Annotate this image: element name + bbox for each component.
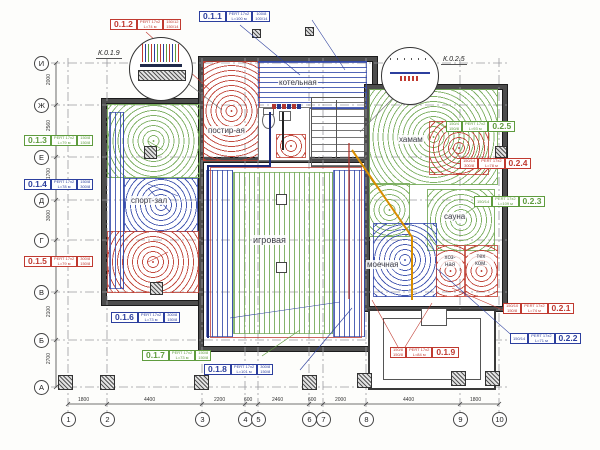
coil-0-2-1	[436, 245, 465, 297]
value-1: 150/14	[513, 337, 525, 341]
value-2: 150/8	[198, 356, 208, 360]
circuit-label-016: 0.1.6 PERT 17x2L=73 м 300/8150/8	[111, 312, 180, 323]
dim-b-a: 2700	[46, 353, 52, 364]
loop-length: L=101 м	[234, 370, 254, 374]
loop-length: L=73 м	[172, 356, 192, 360]
room-label-hoz: хоз- ная	[438, 255, 462, 268]
loop-length: L=79 м	[54, 141, 74, 145]
value-2: 150/8	[167, 318, 177, 322]
column-marker	[276, 194, 287, 205]
footing	[144, 146, 157, 159]
circuit-id: 0.1.8	[204, 364, 231, 375]
hatch-marker	[252, 29, 261, 38]
circuit-label-012: 0.1.2 PERT 17x2L=74 м 150/12150/14	[110, 19, 181, 30]
dim-9-10: 1800	[470, 397, 481, 403]
loop-length: L=74 м	[140, 25, 160, 29]
circuit-label-014: 0.1.4 PERT 17x2L=78 м 150/8300/8	[24, 179, 93, 190]
value-2: 150/8	[80, 141, 90, 145]
circuit-values: 150/14	[510, 333, 528, 344]
circuit-pipe-spec: PERT 17x2L=74 м	[521, 303, 547, 314]
room-label-gym: спорт-зал	[130, 196, 168, 205]
grid-row-zh: Ж	[34, 98, 49, 113]
dim-2-3: 4400	[144, 397, 155, 403]
circuit-values: 300/8150/8	[164, 312, 180, 323]
floor-heating-plan: { "colors": {"red":"#c03a30","blue":"#2c…	[0, 0, 600, 450]
circuit-label-018: 0.1.8 PERT 17x2L=101 м 300/8150/8	[204, 364, 273, 375]
toilet-tank	[263, 108, 274, 115]
value-2: 150/8	[449, 127, 459, 131]
circuit-values: 300/8150/8	[257, 364, 273, 375]
circuit-label-013: 0.1.3 PERT 17x2L=79 м 150/8150/8	[24, 135, 93, 146]
circuit-values: 300/8150/8	[77, 256, 93, 267]
circuit-values: 100/8100/14	[252, 11, 270, 22]
coil-riser-blue	[109, 112, 124, 289]
room-label-boiler: котельная	[278, 78, 318, 87]
grid-row-b: Б	[34, 333, 49, 348]
staircase	[311, 97, 365, 167]
circuit-pipe-spec: PERT 17x2L=84 м	[406, 347, 432, 358]
dim-zh-e: 2560	[46, 120, 52, 131]
value-2: 300/8	[80, 185, 90, 189]
grid-col-6: 6	[302, 412, 317, 427]
loop-length: L=109 м	[495, 202, 515, 206]
value-2: 100/14	[255, 17, 267, 21]
circuit-id: 0.2.2	[555, 333, 582, 344]
dim-6-7: 600	[308, 397, 316, 403]
detail-callout-label-left: К.0.1.9	[96, 50, 122, 59]
grid-col-8: 8	[359, 412, 374, 427]
loop-length: L=78 м	[481, 164, 501, 168]
circuit-id: 0.2.3	[519, 196, 546, 207]
grid-col-10: 10	[492, 412, 507, 427]
room-label-tech: тех ком.	[468, 254, 494, 267]
pipe-line-blue	[390, 72, 430, 74]
stair-rail	[336, 100, 337, 162]
grid-col-5: 5	[251, 412, 266, 427]
detail-circle-left	[129, 37, 193, 101]
column-marker	[276, 262, 287, 273]
sink-fixture	[279, 111, 291, 121]
footing	[58, 375, 73, 390]
circuit-id: 0.2.1	[548, 303, 575, 314]
value-2: 150/8	[80, 262, 90, 266]
grid-row-e: Е	[34, 150, 49, 165]
room-label-laundry: постир-ая	[207, 126, 246, 135]
hatch-marker	[305, 27, 314, 36]
circuit-pipe-spec: PERT 17x2L=93 м	[462, 121, 488, 132]
circuit-pipe-spec: PERT 17x2L=79 м	[51, 256, 77, 267]
room-label-wash: моечная	[366, 260, 400, 269]
loop-length: L=93 м	[465, 127, 485, 131]
circuit-id: 0.2.4	[505, 158, 532, 169]
dim-d-g: 3000	[46, 210, 52, 221]
grid-col-3: 3	[195, 412, 210, 427]
coil-0-1-2	[203, 61, 260, 161]
circuit-values: 150/8150/8	[390, 347, 406, 358]
circuit-pipe-spec: PERT 17x2L=73 м	[138, 312, 164, 323]
circuit-id: 0.1.7	[142, 350, 169, 361]
grid-col-7: 7	[316, 412, 331, 427]
detail-circle-right	[381, 47, 439, 105]
circuit-label-022: 150/14 PERT 17x2L=71 м 0.2.2	[510, 333, 581, 344]
grid-col-9: 9	[453, 412, 468, 427]
circuit-values: 150/10150/8	[503, 303, 521, 314]
circuit-pipe-spec: PERT 17x2L=109 м	[492, 196, 518, 207]
circuit-label-019: 150/8150/8 PERT 17x2L=84 м 0.1.9	[390, 347, 459, 358]
manifold-bar	[140, 64, 182, 67]
coil-outline-red	[210, 167, 362, 338]
footing	[357, 373, 372, 388]
loop-length: L=78 м	[54, 185, 74, 189]
circuit-label-015: 0.1.5 PERT 17x2L=79 м 300/8150/8	[24, 256, 93, 267]
coil-bathroom	[276, 134, 306, 158]
footing	[100, 375, 115, 390]
value-2: 150/14	[166, 25, 178, 29]
circuit-pipe-spec: PERT 17x2L=78 м	[478, 158, 504, 169]
dim-8-9: 4400	[403, 397, 414, 403]
circuit-pipe-spec: PERT 17x2L=101 м	[231, 364, 257, 375]
value-2: 150/8	[393, 353, 403, 357]
loop-length: L=71 м	[531, 339, 551, 343]
circuit-values: 150/14300/8	[460, 158, 478, 169]
dim-7-8: 2000	[335, 397, 346, 403]
footing	[194, 375, 209, 390]
value-2: 150/8	[260, 370, 270, 374]
detail-callout-label-right: К.0.2.5	[441, 56, 467, 65]
value-2: 150/8	[506, 309, 518, 313]
circuit-values: 150/8300/8	[77, 179, 93, 190]
circuit-id: 0.2.5	[488, 121, 515, 132]
footing	[150, 282, 163, 295]
footing	[451, 371, 466, 386]
dim-3-4: 2200	[214, 397, 225, 403]
circuit-pipe-spec: PERT 17x2L=78 м	[51, 179, 77, 190]
circuit-label-025: 150/4150/8 PERT 17x2L=93 м 0.2.5	[446, 121, 515, 132]
loop-length: L=100 м	[229, 17, 249, 21]
value-1: 150/14	[477, 200, 489, 204]
room-label-sauna: сауна	[443, 212, 466, 221]
grid-row-a: А	[34, 380, 49, 395]
circuit-id: 0.1.2	[110, 19, 137, 30]
grid-col-2: 2	[100, 412, 115, 427]
circuit-pipe-spec: PERT 17x2L=71 м	[528, 333, 554, 344]
loop-length: L=79 м	[54, 262, 74, 266]
circuit-id: 0.1.4	[24, 179, 51, 190]
circuit-label-024: 150/14300/8 PERT 17x2L=78 м 0.2.4	[460, 158, 531, 169]
circuit-values: 150/8150/8	[195, 350, 211, 361]
circuit-label-021: 150/10150/8 PERT 17x2L=74 м 0.2.1	[503, 303, 574, 314]
circuit-values: 150/14	[474, 196, 492, 207]
circuit-label-017: 0.1.7 PERT 17x2L=73 м 150/8150/8	[142, 350, 211, 361]
circuit-id: 0.1.3	[24, 135, 51, 146]
dots-row	[390, 58, 430, 60]
terrace-notch	[421, 309, 447, 326]
circuit-pipe-spec: PERT 17x2L=79 м	[51, 135, 77, 146]
circuit-id: 0.1.5	[24, 256, 51, 267]
dim-1-2: 1800	[78, 397, 89, 403]
room-label-tech-line1: тех	[468, 254, 494, 261]
footing	[302, 375, 317, 390]
circuit-values: 150/12150/14	[163, 19, 181, 30]
circuit-id: 0.1.1	[199, 11, 226, 22]
room-label-hoz-line1: хоз-	[438, 255, 462, 262]
grid-row-i: И	[34, 56, 49, 71]
circuit-pipe-spec: PERT 17x2L=74 м	[137, 19, 163, 30]
grid-row-v: В	[34, 285, 49, 300]
dim-i-zh: 2000	[46, 74, 52, 85]
dim-e-d: 1700	[46, 168, 52, 179]
dim-4-5: 600	[244, 397, 252, 403]
manifold-pipes-detail	[142, 44, 180, 62]
slab-hatch	[138, 70, 186, 81]
circuit-pipe-spec: PERT 17x2L=100 м	[226, 11, 252, 22]
loop-length: L=74 м	[524, 309, 544, 313]
room-label-hoz-line2: ная	[438, 262, 462, 269]
circuit-values: 150/4150/8	[446, 121, 462, 132]
value-2: 300/8	[463, 164, 475, 168]
hatch-marker	[495, 146, 507, 158]
circuit-label-023: 150/14 PERT 17x2L=109 м 0.2.3	[474, 196, 545, 207]
circuit-id: 0.1.6	[111, 312, 138, 323]
footing	[485, 371, 500, 386]
circuit-values: 150/8150/8	[77, 135, 93, 146]
coil-tech-room	[465, 245, 498, 297]
circuit-id: 0.1.9	[432, 347, 459, 358]
circuit-label-011: 0.1.1 PERT 17x2L=100 м 100/8100/14	[199, 11, 270, 22]
pipe-marks-red	[400, 76, 420, 81]
grid-row-d: Д	[34, 193, 49, 208]
coil-0-1-4	[124, 178, 198, 232]
dim-v-b: 2100	[46, 306, 52, 317]
grid-col-1: 1	[61, 412, 76, 427]
circuit-pipe-spec: PERT 17x2L=73 м	[169, 350, 195, 361]
loop-length: L=84 м	[409, 353, 429, 357]
room-label-hammam: хамам	[398, 135, 424, 144]
room-label-tech-line2: ком.	[468, 261, 494, 268]
loop-length: L=73 м	[141, 318, 161, 322]
grid-row-g: Г	[34, 233, 49, 248]
room-label-game: игровая	[252, 235, 287, 245]
dim-5-6: 2460	[272, 397, 283, 403]
